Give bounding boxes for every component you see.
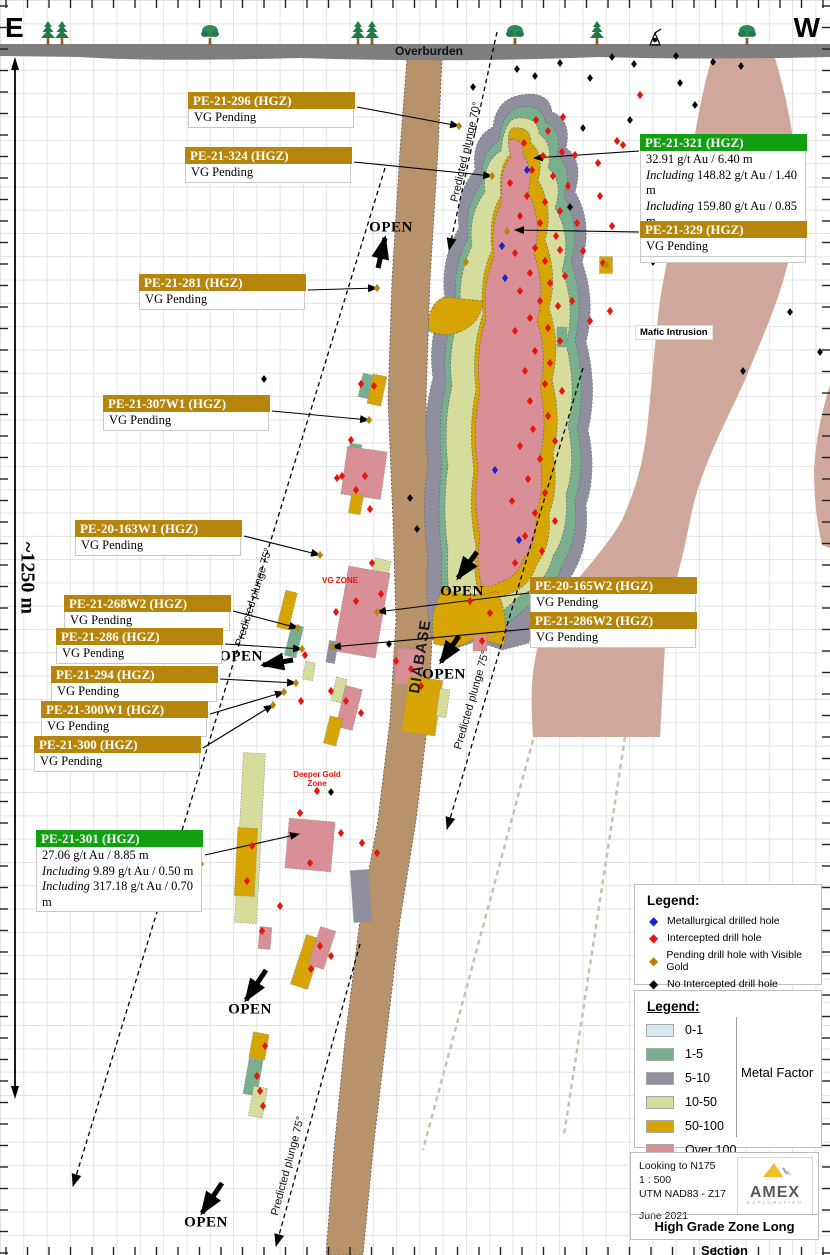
drill-hole-title: PE-21-286 (HGZ) bbox=[56, 628, 223, 645]
drill-hole-title: PE-20-165W2 (HGZ) bbox=[530, 577, 697, 594]
intercepted-hole-marker bbox=[338, 829, 344, 837]
intercept-blob bbox=[350, 869, 372, 922]
assay-line: Including 148.82 g/t Au / 1.40 m bbox=[646, 168, 805, 199]
drill-hole-details: VG Pending bbox=[530, 594, 696, 613]
overburden-label: Overburden bbox=[395, 44, 463, 58]
no-intercept-hole-marker bbox=[631, 60, 637, 68]
legend-item-label: Metallurgical drilled hole bbox=[667, 915, 780, 927]
drill-hole-title: PE-21-324 (HGZ) bbox=[185, 147, 352, 164]
amex-logo: AMEX EXPLORATION bbox=[737, 1157, 813, 1215]
no-intercept-hole-marker bbox=[692, 101, 698, 109]
intercept-blob bbox=[348, 493, 363, 515]
conifer-tree-icon bbox=[41, 21, 55, 45]
intercepted-hole-marker bbox=[620, 141, 626, 149]
drill-hole-label-PE-21-300W1: PE-21-300W1 (HGZ)VG Pending bbox=[41, 701, 208, 737]
drill-hole-label-PE-21-324: PE-21-324 (HGZ)VG Pending bbox=[185, 147, 352, 183]
no-intercept-hole-marker bbox=[470, 83, 476, 91]
conifer-tree-icon bbox=[351, 21, 365, 45]
hgz-metal-factor-shells bbox=[425, 94, 593, 650]
legend-item-label: Pending drill hole with Visible Gold bbox=[666, 949, 821, 973]
open-label: OPEN bbox=[219, 649, 263, 666]
legend-item-label: 50-100 bbox=[685, 1119, 724, 1133]
intercept-blob bbox=[277, 590, 298, 630]
intercepted-hole-marker bbox=[595, 159, 601, 167]
legend-item-label: Intercepted drill hole bbox=[667, 932, 762, 944]
no-intercept-hole-marker bbox=[514, 65, 520, 73]
legend-item: ◆ Intercepted drill hole bbox=[635, 929, 821, 946]
color-chip bbox=[646, 1048, 674, 1061]
deciduous-tree-icon bbox=[738, 25, 756, 45]
no-intercept-hole-marker bbox=[677, 79, 683, 87]
drill-hole-details: VG Pending bbox=[34, 753, 200, 772]
drill-hole-title: PE-21-321 (HGZ) bbox=[640, 134, 807, 151]
amex-logo-text: AMEX bbox=[738, 1185, 812, 1200]
drill-hole-label-PE-20-163W1: PE-20-163W1 (HGZ)VG Pending bbox=[75, 520, 242, 556]
intercept-blob bbox=[234, 828, 258, 897]
intercepted-hole-marker bbox=[334, 474, 340, 482]
amex-logo-subtext: EXPLORATION bbox=[738, 1200, 812, 1205]
drill-hole-title: PE-21-296 (HGZ) bbox=[188, 92, 355, 109]
intercepted-hole-marker bbox=[314, 787, 320, 795]
title-block: Looking to N175 1 : 500 UTM NAD83 - Z17 … bbox=[630, 1152, 819, 1240]
leader-arrow-PE-21-307W1 bbox=[272, 411, 369, 420]
pending-vg-hole-marker bbox=[270, 701, 276, 709]
leader-arrow-PE-20-163W1 bbox=[244, 536, 320, 555]
legend-title: Legend: bbox=[635, 991, 821, 1018]
drill-hole-details: 27.06 g/t Au / 8.85 mIncluding 9.89 g/t … bbox=[36, 847, 202, 912]
conifer-tree-icon bbox=[590, 21, 604, 45]
drill-hole-details: VG Pending bbox=[41, 718, 207, 737]
pending-vg-hole-marker bbox=[456, 122, 462, 130]
drill-hole-title: PE-21-300 (HGZ) bbox=[34, 736, 201, 753]
assay-line: VG Pending bbox=[81, 538, 240, 554]
drill-hole-details: VG Pending bbox=[640, 238, 806, 257]
intercepted-hole-marker bbox=[597, 192, 603, 200]
surface-trees bbox=[41, 21, 756, 45]
drill-hole-title: PE-21-329 (HGZ) bbox=[640, 221, 807, 238]
legend-item-label: 10-50 bbox=[685, 1095, 717, 1109]
deciduous-tree-icon bbox=[201, 25, 219, 45]
assay-line: VG Pending bbox=[536, 630, 695, 646]
pending-vg-hole-marker bbox=[299, 645, 305, 653]
drill-hole-label-PE-21-296: PE-21-296 (HGZ)VG Pending bbox=[188, 92, 355, 128]
assay-line: VG Pending bbox=[47, 719, 206, 735]
diamond-icon: ◆ bbox=[649, 932, 667, 944]
intercepted-hole-marker bbox=[348, 436, 354, 444]
open-arrow bbox=[378, 238, 385, 268]
open-label: OPEN bbox=[440, 584, 484, 601]
assay-line: VG Pending bbox=[191, 165, 350, 181]
amex-mountain-icon bbox=[755, 1161, 795, 1179]
drill-hole-label-PE-21-281: PE-21-281 (HGZ)VG Pending bbox=[139, 274, 306, 310]
assay-line: VG Pending bbox=[194, 110, 353, 126]
drill-hole-title: PE-21-307W1 (HGZ) bbox=[103, 395, 270, 412]
no-intercept-hole-marker bbox=[787, 308, 793, 316]
drill-hole-title: PE-21-294 (HGZ) bbox=[51, 666, 218, 683]
legend-item: 10-50 bbox=[635, 1090, 821, 1114]
no-intercept-hole-marker bbox=[580, 124, 586, 132]
intercepted-hole-marker bbox=[302, 651, 308, 659]
drill-rig-icon bbox=[650, 29, 661, 45]
drill-hole-label-PE-21-301: PE-21-301 (HGZ)27.06 g/t Au / 8.85 mIncl… bbox=[36, 830, 203, 912]
assay-line: Including 9.89 g/t Au / 0.50 m bbox=[42, 864, 201, 880]
compass-east-label: E bbox=[5, 12, 24, 44]
open-label: OPEN bbox=[369, 220, 413, 237]
drill-hole-details: VG Pending bbox=[139, 291, 305, 310]
legend-divider bbox=[736, 1017, 737, 1137]
no-intercept-hole-marker bbox=[817, 348, 823, 356]
intercept-blob bbox=[557, 327, 567, 347]
long-section-canvas: E W Overburden DIABASE Mafic Intrusion V… bbox=[0, 0, 830, 1255]
drill-hole-label-PE-20-165W2: PE-20-165W2 (HGZ)VG Pending bbox=[530, 577, 697, 613]
legend-drill-holes: Legend: ◆ Metallurgical drilled hole ◆ I… bbox=[634, 884, 822, 985]
assay-line: VG Pending bbox=[646, 239, 805, 255]
drill-hole-title: PE-21-300W1 (HGZ) bbox=[41, 701, 208, 718]
legend-item: 0-1 bbox=[635, 1018, 821, 1042]
legend-item: 1-5 bbox=[635, 1042, 821, 1066]
drill-hole-details: VG Pending bbox=[188, 109, 354, 128]
drill-hole-title: PE-21-268W2 (HGZ) bbox=[64, 595, 231, 612]
legend-item-label: No Intercepted drill hole bbox=[667, 978, 778, 990]
deciduous-tree-icon bbox=[506, 25, 524, 45]
legend-item: ◆ Metallurgical drilled hole bbox=[635, 912, 821, 929]
leader-arrow-PE-21-294 bbox=[220, 679, 296, 683]
open-arrow bbox=[202, 1183, 222, 1213]
drill-hole-details: VG Pending bbox=[51, 683, 217, 702]
drill-hole-title: PE-20-163W1 (HGZ) bbox=[75, 520, 242, 537]
legend-item-label: 5-10 bbox=[685, 1071, 710, 1085]
drill-hole-details: VG Pending bbox=[530, 629, 696, 648]
open-label: OPEN bbox=[228, 1002, 272, 1019]
intercepted-hole-marker bbox=[297, 809, 303, 817]
pending-vg-hole-marker bbox=[281, 688, 287, 696]
assay-line: Including 317.18 g/t Au / 0.70 m bbox=[42, 879, 201, 910]
vg-zone-label: VG ZONE bbox=[322, 576, 358, 585]
assay-line: VG Pending bbox=[145, 292, 304, 308]
intercepted-hole-marker bbox=[607, 307, 613, 315]
pending-vg-hole-marker bbox=[317, 551, 323, 559]
intercepted-hole-marker bbox=[367, 505, 373, 513]
open-arrow bbox=[263, 660, 293, 665]
mafic-intrusion-label: Mafic Intrusion bbox=[636, 326, 712, 339]
intercepted-hole-marker bbox=[359, 839, 365, 847]
legend-item-label: 1-5 bbox=[685, 1047, 703, 1061]
legend-metal-factor: Legend: 0-1 1-5 5-10 10-50 50-100 Over 1… bbox=[634, 990, 822, 1148]
drill-hole-label-PE-21-286W2: PE-21-286W2 (HGZ)VG Pending bbox=[530, 612, 697, 648]
no-intercept-hole-marker bbox=[261, 375, 267, 383]
assay-line: VG Pending bbox=[536, 595, 695, 611]
open-arrow bbox=[246, 970, 266, 1000]
scale-length-label: ~1250 m bbox=[16, 542, 39, 614]
intercepted-hole-marker bbox=[609, 222, 615, 230]
intercepted-hole-marker bbox=[277, 902, 283, 910]
assay-line: VG Pending bbox=[109, 413, 268, 429]
drill-hole-label-PE-21-294: PE-21-294 (HGZ)VG Pending bbox=[51, 666, 218, 702]
diamond-icon: ◆ bbox=[649, 915, 667, 927]
pending-vg-hole-marker bbox=[366, 416, 372, 424]
leader-arrow-PE-21-281 bbox=[308, 288, 377, 290]
no-intercept-hole-marker bbox=[587, 74, 593, 82]
assay-line: VG Pending bbox=[57, 684, 216, 700]
intercepted-hole-marker bbox=[298, 697, 304, 705]
intercept-blob bbox=[323, 716, 342, 746]
drill-hole-label-PE-21-329: PE-21-329 (HGZ)VG Pending bbox=[640, 221, 807, 257]
legend-title: Legend: bbox=[635, 885, 821, 912]
drill-hole-label-PE-21-286: PE-21-286 (HGZ)VG Pending bbox=[56, 628, 223, 664]
diamond-icon: ◆ bbox=[649, 955, 666, 967]
intercepted-hole-marker bbox=[358, 709, 364, 717]
drill-hole-title: PE-21-281 (HGZ) bbox=[139, 274, 306, 291]
pending-vg-hole-marker bbox=[293, 679, 299, 687]
color-chip bbox=[646, 1120, 674, 1133]
color-chip bbox=[646, 1024, 674, 1037]
conifer-tree-icon bbox=[365, 21, 379, 45]
assay-line: VG Pending bbox=[62, 646, 221, 662]
intercepted-hole-marker bbox=[333, 608, 339, 616]
drill-hole-details: VG Pending bbox=[103, 412, 269, 431]
assay-line: 32.91 g/t Au / 6.40 m bbox=[646, 152, 805, 168]
section-title: High Grade Zone Long Section bbox=[631, 1214, 818, 1239]
legend-item: 50-100 bbox=[635, 1114, 821, 1138]
legend-item: ◆ Pending drill hole with Visible Gold bbox=[635, 946, 821, 975]
drill-hole-details: VG Pending bbox=[185, 164, 351, 183]
drill-hole-label-PE-21-268W2: PE-21-268W2 (HGZ)VG Pending bbox=[64, 595, 231, 631]
metal-factor-caption: Metal Factor bbox=[741, 1065, 813, 1080]
open-label: OPEN bbox=[184, 1215, 228, 1232]
compass-west-label: W bbox=[794, 12, 820, 44]
assay-line: 27.06 g/t Au / 8.85 m bbox=[42, 848, 201, 864]
color-chip bbox=[646, 1072, 674, 1085]
drill-hole-details: VG Pending bbox=[56, 645, 222, 664]
intercepted-hole-marker bbox=[637, 91, 643, 99]
drill-hole-details: VG Pending bbox=[75, 537, 241, 556]
no-intercept-hole-marker bbox=[557, 59, 563, 67]
no-intercept-hole-marker bbox=[532, 72, 538, 80]
assay-line: VG Pending bbox=[70, 613, 229, 629]
no-intercept-hole-marker bbox=[328, 788, 334, 796]
intercepted-hole-marker bbox=[614, 137, 620, 145]
drill-hole-label-PE-21-307W1: PE-21-307W1 (HGZ)VG Pending bbox=[103, 395, 270, 431]
drill-hole-label-PE-21-300: PE-21-300 (HGZ)VG Pending bbox=[34, 736, 201, 772]
pending-vg-hole-marker bbox=[374, 284, 380, 292]
intercept-blob bbox=[341, 446, 387, 499]
conifer-tree-icon bbox=[55, 21, 69, 45]
legend-item-label: 0-1 bbox=[685, 1023, 703, 1037]
open-label: OPEN bbox=[422, 667, 466, 684]
intercept-blob bbox=[303, 661, 316, 680]
drill-hole-title: PE-21-286W2 (HGZ) bbox=[530, 612, 697, 629]
no-intercept-hole-marker bbox=[627, 116, 633, 124]
color-chip bbox=[646, 1096, 674, 1109]
drill-hole-title: PE-21-301 (HGZ) bbox=[36, 830, 203, 847]
intercepted-hole-marker bbox=[328, 952, 334, 960]
diamond-icon: ◆ bbox=[649, 978, 667, 990]
deeper-gold-zone-label: Deeper Gold Zone bbox=[292, 770, 342, 788]
assay-line: VG Pending bbox=[40, 754, 199, 770]
